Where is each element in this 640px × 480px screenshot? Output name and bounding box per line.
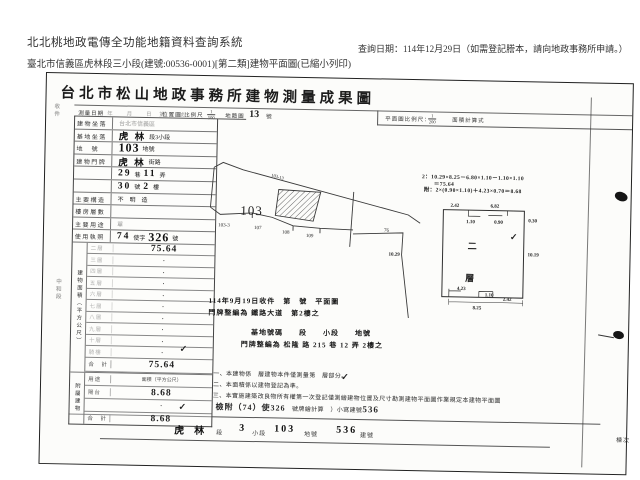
dim-notch-1: 1.10: [466, 220, 475, 225]
floor-label: 四層: [87, 267, 113, 275]
value-segment: 2: [143, 182, 150, 192]
parcel-number-small: 109: [306, 234, 314, 239]
value-segment: 號: [134, 182, 140, 191]
value-segment: 虎 林: [118, 155, 146, 168]
parcel-number-small: 103-3: [218, 223, 230, 228]
info-row-label: [74, 180, 112, 192]
floor-label: 騎樓: [86, 348, 112, 356]
floor-label: 六層: [87, 290, 113, 298]
annex-rows: 用途 面積（平方公尺） 陽台8.68·合 計8.68: [84, 373, 212, 426]
plan-outline: [442, 210, 525, 299]
parcel-line: [350, 192, 354, 247]
check-mark: ✓: [341, 372, 349, 383]
bottom-strip-cell: 虎: [174, 422, 186, 437]
floor-label: 十層: [86, 336, 112, 344]
bottom-strip-cell: 536: [336, 425, 357, 436]
annex-area-header: 面積（平方公尺）: [111, 376, 212, 385]
plan-scale-fraction: 1200: [428, 113, 436, 124]
check-mark: ✓: [510, 232, 518, 243]
floor-plan: 2.42 6.82 1.10 0.90 0.30 10.29 10.19 4.2…: [382, 198, 570, 337]
floor-label: 八層: [86, 313, 112, 321]
info-row-label: 地 號: [74, 142, 112, 154]
info-row-label: 主要構造: [73, 192, 111, 204]
fold-line: [581, 97, 592, 467]
bottom-strip-cell: 103: [274, 423, 295, 434]
floor-area-value: ·: [112, 336, 213, 347]
value-segment: 103: [118, 142, 139, 156]
dim-notch-3: 0.30: [528, 219, 537, 224]
bottom-strip-cell: 棟次: [616, 430, 630, 444]
value-segment: 台北市信義區: [119, 119, 155, 129]
annex-column-label: 附屬建物: [69, 372, 85, 423]
info-row-value: 台北市信義區: [113, 117, 217, 131]
query-date: 查詢日期：114年12月29日（如需登記謄本，請向地政事務所申請。）: [358, 42, 628, 55]
scanned-survey-document: 台北市松山地政事務所建物測量成果圖 測量日期 年 月 日 第 號 位置圖 比例尺…: [38, 72, 633, 475]
floor-label: 九層: [86, 325, 112, 333]
ink-blob: [614, 190, 629, 203]
value-segment: 號: [172, 233, 178, 242]
value-segment: 巷: [134, 169, 140, 178]
floor-area-table: 建物面積（平方公尺） 二層75.64三層·四層·五層·六層·七層·八層·九層·十…: [70, 242, 214, 375]
value-segment: 326: [148, 231, 169, 245]
area-total-row: 合 計75.64: [85, 358, 212, 374]
margin-mark: 收件: [52, 103, 60, 118]
floor-label: 三層: [87, 256, 113, 264]
system-title: 北北桃地政電傳全功能地籍資料查詢系統: [27, 34, 243, 50]
area-total-value: 75.64: [111, 360, 212, 372]
plan-scale-denominator: 200: [429, 119, 436, 124]
annex-use-label: 陽台: [85, 388, 111, 396]
handwritten-annotation: 門牌整編為 鐵路大道 第2樓之: [208, 308, 319, 319]
info-row-label: 主要用途: [73, 217, 111, 229]
note-4-text: 號牌繪計算 ）小寫建號: [286, 407, 363, 414]
dim-bottom-total: 8.25: [472, 306, 481, 311]
cadastral-sheet-number: 13: [249, 109, 259, 120]
note-2: 二、本面積係以建物登記為準。: [213, 379, 303, 390]
note-1: 一、本建物係 層建物本件僅測量第 層部分。: [213, 368, 348, 380]
sheet-unit-label: 號: [266, 112, 273, 120]
value-segment: 單: [117, 219, 123, 228]
info-row-label: 基地坐落: [75, 129, 113, 141]
dim-bottom-1: 4.23: [457, 287, 466, 292]
annex-area-value: 8.68: [111, 387, 212, 399]
bottom-strip-cell: 段: [216, 422, 223, 436]
floor-label: 七層: [86, 302, 112, 310]
annex-use-header: 用途: [85, 375, 111, 383]
info-row-label: 樓房層數: [73, 205, 111, 217]
building-footprint-hatch: [275, 189, 321, 221]
note-4-number: 536: [362, 404, 379, 414]
floor-label-char2: 層: [465, 272, 474, 283]
note-4: 檢附（74）使326 號牌繪計算 ）小寫建號536: [215, 401, 378, 415]
check-mark: ✓: [180, 344, 188, 355]
area-column-label-text: 建物面積（平方公尺）: [74, 270, 83, 345]
value-segment: 街路: [149, 157, 161, 166]
value-segment: 樓: [153, 182, 159, 191]
info-row-label: 建物坐落: [75, 117, 113, 129]
floor-label: 五層: [87, 279, 113, 287]
bottom-strip-cell: 3: [239, 423, 246, 434]
floor-label-char1: 二: [468, 241, 477, 251]
floor-area-value: ·: [112, 325, 213, 336]
parcel-line: [210, 167, 214, 207]
check-mark: ✓: [178, 402, 186, 413]
info-row-label: 建物門牌: [74, 154, 112, 166]
bottom-strip-cell: 地號: [304, 424, 318, 438]
floor-label: 二層: [88, 244, 114, 252]
floor-area-value: ·: [112, 348, 213, 359]
info-row-value: 103地號: [112, 142, 216, 156]
value-segment: 30: [118, 181, 132, 191]
value-segment: 段3小段: [149, 132, 170, 141]
dim-right: 10.19: [528, 253, 540, 258]
area-calculation: 附：2×(0.90×1.10)＋4.23×0.70＝8.68: [424, 185, 522, 195]
annex-area-value: ·: [111, 401, 212, 412]
bottom-strip-cell: 建號: [360, 425, 374, 439]
info-row-value: 虎 林段3小段: [113, 130, 217, 144]
document-subtitle: 臺北市信義區虎林段三小段(建號:00536-0001)[第二類]建物平面圖(已縮…: [27, 56, 351, 70]
plan-scale-label: 平面圖比例尺：: [385, 115, 431, 124]
parcel-number: 103: [240, 203, 263, 218]
margin-mark: 中和段: [54, 278, 62, 301]
bottom-strip-cell: 小段: [252, 423, 266, 437]
parcel-number-small: 107: [254, 226, 262, 231]
handwritten-annotation: 門牌整編為 松隆 路 215 巷 12 弄 2樓之: [241, 340, 383, 351]
note-4-permit: 檢附（74）使326: [216, 402, 286, 412]
value-segment: 地號: [142, 144, 154, 153]
ink-blob-tail: [598, 334, 614, 338]
value-segment: 74: [117, 232, 131, 242]
handwritten-annotation: 基地號碼 段 小段 地號: [251, 328, 371, 339]
total-label: 合 計: [85, 360, 111, 368]
dim-bottom-2: 1.10: [485, 293, 494, 298]
dim-top-2: 6.82: [490, 205, 499, 210]
dim-bottom-3: 2.42: [503, 298, 512, 303]
value-segment: 11: [143, 169, 156, 179]
value-segment: 虎 林: [119, 130, 147, 143]
value-segment: 使字: [133, 232, 145, 241]
annex-building-table: 附屬建物 用途 面積（平方公尺） 陽台8.68·合 計8.68: [69, 372, 212, 426]
value-segment: 29: [118, 169, 132, 179]
info-row-label: 使用執照: [73, 230, 111, 242]
annex-column-label-text: 附屬建物: [72, 383, 81, 413]
parcel-number-small: 108: [282, 231, 290, 236]
value-segment: 弄: [159, 170, 165, 179]
area-formula-label: 面積計算式: [452, 116, 485, 125]
dim-left: 10.29: [388, 253, 400, 258]
dim-top-1: 2.42: [450, 204, 459, 209]
info-row-label: [74, 167, 112, 179]
bottom-strip: 虎林段3小段103地號536建號棟次: [68, 419, 626, 448]
ink-blob: [612, 330, 625, 340]
dim-notch-2: 0.90: [494, 221, 503, 226]
value-segment: 不 明 造: [117, 194, 147, 204]
handwritten-annotation: 114年9月19日收件 第 號 平面圖: [209, 296, 340, 307]
bottom-strip-cell: 林: [194, 422, 206, 437]
plan-dimension-line: [449, 299, 523, 306]
